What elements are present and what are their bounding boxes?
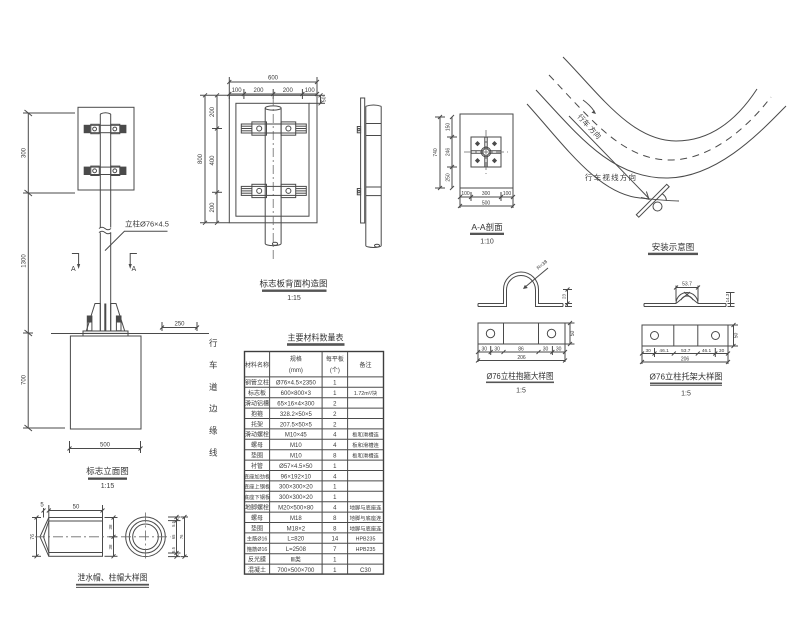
svg-text:主要材料数量表: 主要材料数量表 bbox=[288, 333, 344, 343]
svg-text:泄水帽、柱帽大样图: 泄水帽、柱帽大样图 bbox=[78, 573, 148, 583]
svg-text:50: 50 bbox=[570, 331, 576, 337]
svg-text:螺母: 螺母 bbox=[251, 514, 263, 522]
svg-text:65: 65 bbox=[171, 534, 176, 539]
svg-text:8: 8 bbox=[333, 454, 337, 460]
svg-text:4: 4 bbox=[333, 474, 337, 480]
svg-text:L=2508: L=2508 bbox=[286, 547, 307, 553]
svg-text:200: 200 bbox=[210, 106, 216, 117]
svg-text:5: 5 bbox=[40, 503, 44, 509]
svg-text:4: 4 bbox=[333, 433, 337, 439]
svg-text:200: 200 bbox=[283, 88, 294, 94]
svg-text:500: 500 bbox=[482, 201, 491, 207]
svg-text:板和滑槽连: 板和滑槽连 bbox=[352, 452, 379, 460]
svg-text:50: 50 bbox=[734, 333, 740, 339]
svg-text:Ø57×4.5×50: Ø57×4.5×50 bbox=[279, 464, 313, 470]
svg-text:混凝土: 混凝土 bbox=[248, 566, 266, 574]
svg-text:M10: M10 bbox=[290, 454, 302, 460]
svg-text:100: 100 bbox=[461, 191, 470, 197]
svg-text:垫圈: 垫圈 bbox=[251, 452, 263, 460]
svg-text:23: 23 bbox=[562, 294, 567, 300]
svg-text:14: 14 bbox=[332, 537, 339, 543]
svg-text:A: A bbox=[132, 266, 137, 273]
svg-text:M20×500×80: M20×500×80 bbox=[278, 506, 314, 512]
svg-text:Ⅲ类: Ⅲ类 bbox=[291, 556, 301, 564]
svg-text:400: 400 bbox=[210, 155, 216, 166]
svg-text:C30: C30 bbox=[360, 568, 372, 574]
svg-text:每平板: 每平板 bbox=[326, 355, 344, 363]
svg-text:1: 1 bbox=[333, 464, 337, 470]
svg-text:250: 250 bbox=[446, 173, 452, 182]
svg-text:30: 30 bbox=[719, 348, 725, 354]
svg-text:86: 86 bbox=[518, 346, 524, 352]
svg-text:箍筋Ø16: 箍筋Ø16 bbox=[247, 545, 268, 553]
svg-text:行车视线方向: 行车视线方向 bbox=[585, 172, 637, 182]
svg-text:38: 38 bbox=[108, 544, 113, 550]
svg-text:1:15: 1:15 bbox=[101, 483, 115, 490]
svg-text:Ø76×4.5×2350: Ø76×4.5×2350 bbox=[276, 381, 317, 387]
svg-text:5.5: 5.5 bbox=[171, 520, 176, 526]
svg-text:主筋Ø16: 主筋Ø16 bbox=[247, 535, 268, 543]
svg-text:2: 2 bbox=[333, 402, 337, 408]
svg-text:垫圈: 垫圈 bbox=[251, 524, 263, 532]
svg-text:M10: M10 bbox=[290, 443, 302, 449]
svg-text:1: 1 bbox=[333, 495, 337, 501]
svg-text:立柱Ø76×4.5: 立柱Ø76×4.5 bbox=[125, 219, 169, 229]
svg-text:1.72m²/块: 1.72m²/块 bbox=[354, 389, 378, 397]
svg-text:300: 300 bbox=[482, 191, 491, 197]
svg-text:38: 38 bbox=[108, 524, 113, 530]
svg-text:300×300×20: 300×300×20 bbox=[279, 485, 313, 491]
svg-text:206: 206 bbox=[517, 355, 526, 361]
svg-text:46.1: 46.1 bbox=[702, 348, 712, 354]
svg-text:标志板背面构造图: 标志板背面构造图 bbox=[259, 279, 327, 289]
svg-text:600×800×3: 600×800×3 bbox=[281, 391, 312, 397]
svg-text:50: 50 bbox=[322, 96, 328, 102]
svg-text:53.7: 53.7 bbox=[681, 348, 691, 354]
svg-text:30: 30 bbox=[556, 346, 562, 352]
svg-text:700: 700 bbox=[22, 374, 28, 385]
svg-text:螺母: 螺母 bbox=[251, 441, 263, 449]
svg-text:抱箍: 抱箍 bbox=[251, 410, 263, 418]
svg-text:(个): (个) bbox=[330, 367, 340, 374]
svg-text:53.7: 53.7 bbox=[682, 282, 692, 288]
svg-text:1: 1 bbox=[333, 381, 337, 387]
svg-text:底座下钢板: 底座下钢板 bbox=[244, 493, 271, 501]
svg-text:800: 800 bbox=[198, 153, 204, 164]
svg-text:300×300×20: 300×300×20 bbox=[279, 495, 313, 501]
svg-text:200: 200 bbox=[210, 202, 216, 213]
svg-text:托架: 托架 bbox=[251, 420, 263, 428]
svg-text:76: 76 bbox=[179, 534, 184, 539]
svg-text:备注: 备注 bbox=[360, 361, 372, 369]
svg-text:700×500×700: 700×500×700 bbox=[277, 568, 315, 574]
svg-text:1:15: 1:15 bbox=[287, 295, 301, 302]
svg-text:地脚与底座连: 地脚与底座连 bbox=[350, 524, 382, 532]
svg-text:30: 30 bbox=[646, 348, 652, 354]
svg-text:8: 8 bbox=[333, 516, 337, 522]
svg-text:地脚与底座连: 地脚与底座连 bbox=[350, 514, 382, 522]
svg-text:8: 8 bbox=[333, 526, 337, 532]
svg-text:30: 30 bbox=[482, 346, 488, 352]
svg-text:100: 100 bbox=[232, 88, 243, 94]
svg-text:740: 740 bbox=[433, 148, 439, 157]
svg-text:HPB235: HPB235 bbox=[356, 537, 376, 543]
svg-text:246: 246 bbox=[446, 148, 452, 157]
svg-text:HPB235: HPB235 bbox=[356, 547, 376, 553]
svg-text:207.5×50×5: 207.5×50×5 bbox=[280, 422, 313, 428]
svg-text:材料名称: 材料名称 bbox=[245, 361, 269, 369]
svg-text:600: 600 bbox=[268, 76, 279, 82]
svg-text:M10×45: M10×45 bbox=[285, 433, 308, 439]
svg-text:200: 200 bbox=[253, 88, 264, 94]
svg-text:M18×2: M18×2 bbox=[287, 526, 306, 532]
svg-text:底座上钢板: 底座上钢板 bbox=[244, 483, 271, 491]
svg-text:100: 100 bbox=[503, 191, 512, 197]
svg-text:滑动螺栓: 滑动螺栓 bbox=[245, 431, 269, 439]
svg-text:1:10: 1:10 bbox=[480, 239, 494, 246]
svg-text:4: 4 bbox=[333, 443, 337, 449]
svg-text:5.5: 5.5 bbox=[171, 546, 176, 552]
svg-text:安装示意图: 安装示意图 bbox=[652, 242, 695, 252]
svg-text:板和滑槽连: 板和滑槽连 bbox=[352, 441, 379, 449]
svg-text:100: 100 bbox=[305, 88, 316, 94]
svg-text:地脚与底座连: 地脚与底座连 bbox=[350, 504, 382, 512]
svg-text:1:5: 1:5 bbox=[516, 388, 526, 395]
svg-text:反光膜: 反光膜 bbox=[248, 556, 266, 564]
svg-text:1: 1 bbox=[333, 485, 337, 491]
svg-text:Ø76立柱抱箍大样图: Ø76立柱抱箍大样图 bbox=[487, 371, 554, 381]
svg-text:Ø76立柱托架大样图: Ø76立柱托架大样图 bbox=[650, 372, 723, 382]
svg-text:1: 1 bbox=[333, 391, 337, 397]
svg-text:规格: 规格 bbox=[290, 355, 302, 363]
svg-text:46.1: 46.1 bbox=[659, 348, 669, 354]
svg-text:50: 50 bbox=[73, 505, 80, 511]
svg-text:250: 250 bbox=[174, 322, 185, 328]
svg-text:(mm): (mm) bbox=[289, 368, 303, 374]
svg-text:1300: 1300 bbox=[22, 254, 28, 268]
svg-text:7: 7 bbox=[333, 547, 337, 553]
svg-text:L=820: L=820 bbox=[287, 537, 305, 543]
svg-text:4: 4 bbox=[333, 506, 337, 512]
svg-text:标志板: 标志板 bbox=[248, 389, 266, 397]
svg-text:滑动铝槽: 滑动铝槽 bbox=[245, 400, 269, 408]
svg-text:A-A剖面: A-A剖面 bbox=[471, 222, 503, 232]
svg-text:150: 150 bbox=[446, 123, 452, 132]
svg-text:1:5: 1:5 bbox=[681, 391, 691, 398]
svg-text:R=38: R=38 bbox=[536, 259, 549, 272]
svg-text:地脚螺栓: 地脚螺栓 bbox=[245, 504, 269, 512]
svg-text:2: 2 bbox=[333, 422, 337, 428]
svg-text:标志立面图: 标志立面图 bbox=[86, 466, 129, 476]
svg-text:1: 1 bbox=[333, 568, 337, 574]
svg-text:板和滑槽连: 板和滑槽连 bbox=[352, 431, 379, 439]
svg-text:2: 2 bbox=[333, 412, 337, 418]
svg-text:衬管: 衬管 bbox=[251, 462, 263, 470]
svg-text:30: 30 bbox=[494, 346, 500, 352]
svg-text:底座加劲板: 底座加劲板 bbox=[244, 472, 271, 480]
svg-text:1: 1 bbox=[333, 558, 337, 564]
svg-text:14.3: 14.3 bbox=[725, 293, 730, 302]
svg-text:328.2×50×5: 328.2×50×5 bbox=[280, 412, 313, 418]
svg-text:300: 300 bbox=[22, 147, 28, 158]
svg-text:行车道边缘线: 行车道边缘线 bbox=[209, 338, 218, 458]
svg-text:30: 30 bbox=[543, 346, 549, 352]
svg-text:65×16×4×300: 65×16×4×300 bbox=[277, 402, 315, 408]
svg-text:A: A bbox=[71, 266, 76, 273]
svg-text:钢管立柱: 钢管立柱 bbox=[245, 379, 269, 387]
svg-text:206: 206 bbox=[681, 356, 690, 362]
svg-text:M18: M18 bbox=[290, 516, 302, 522]
svg-text:96×192×10: 96×192×10 bbox=[281, 474, 312, 480]
svg-text:500: 500 bbox=[100, 443, 111, 449]
